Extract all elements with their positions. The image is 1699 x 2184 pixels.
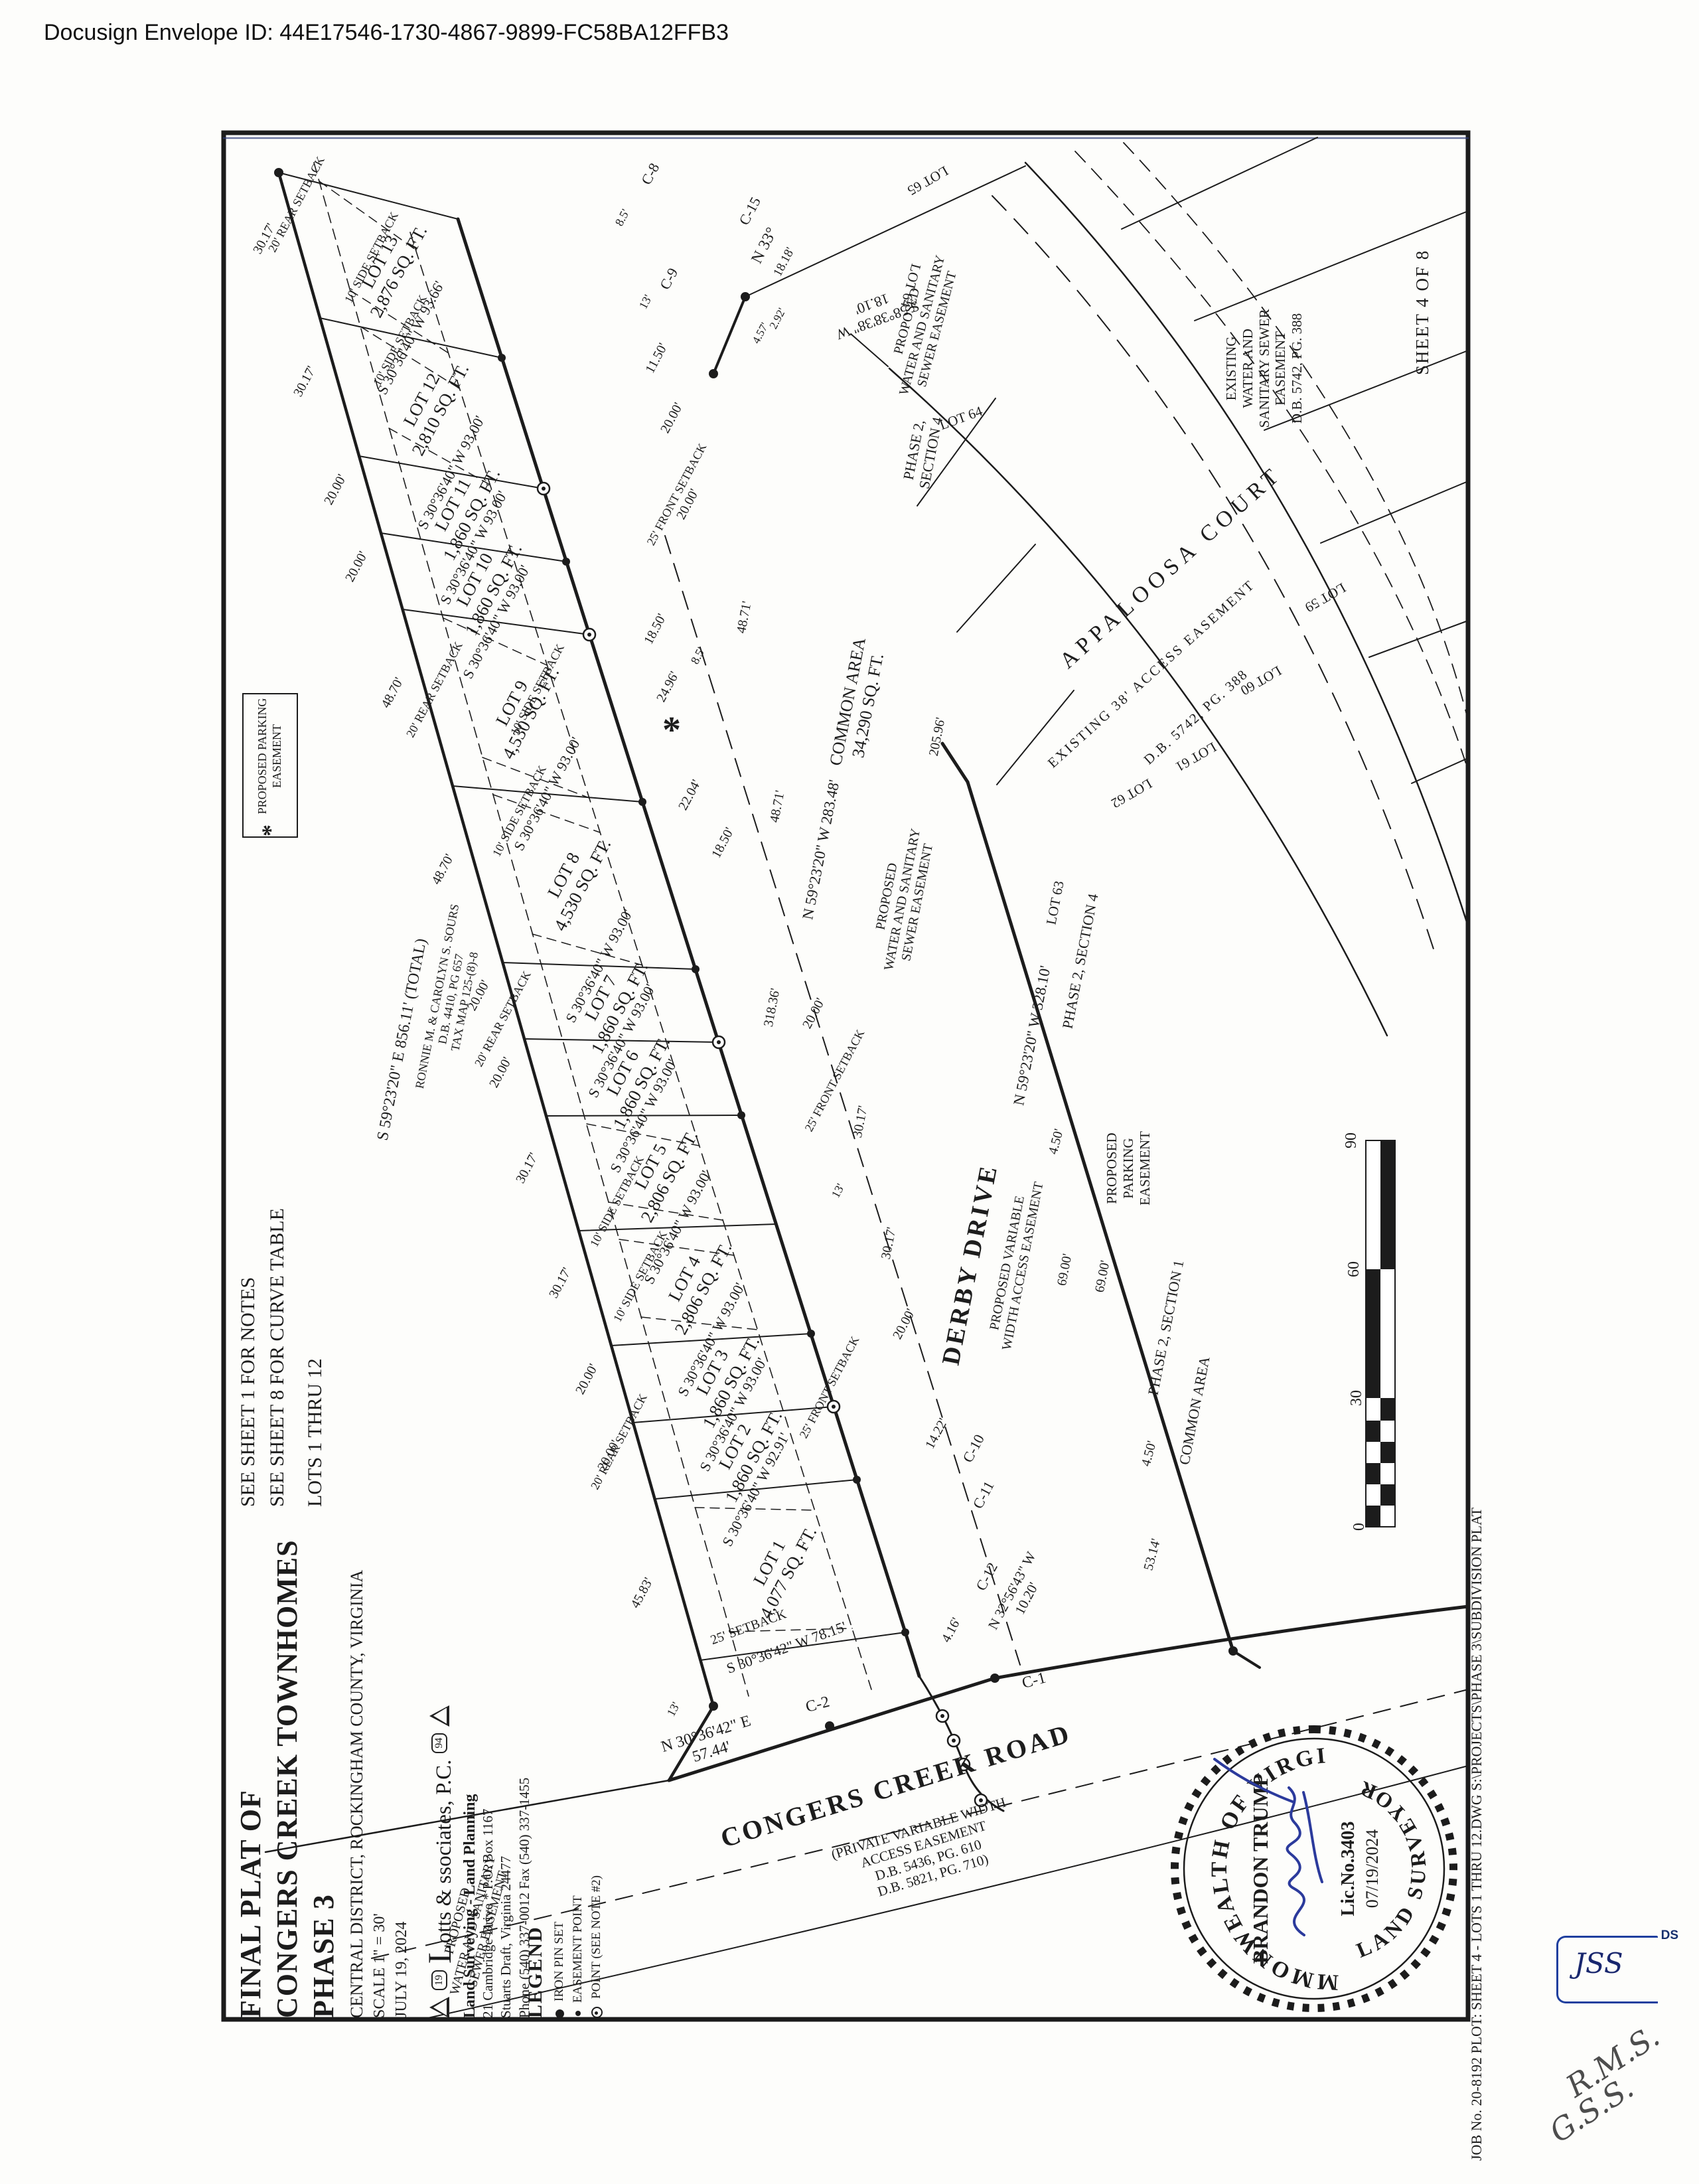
surveyor-seal: COMMONWEALTH OF VIRGINIA LAND SURVEYOR B… [1161, 1716, 1467, 2021]
seal-surveyor-name: BRANDON TRUMP [1248, 1774, 1272, 1964]
bearing-n325643: N 32°56'43" W 10.20' [985, 1549, 1054, 1640]
proposed-ws-easement-road: PROPOSED WATER AND SANITARY SEWER EASEME… [432, 1849, 515, 2001]
dim-13-mid: 13' [829, 1182, 848, 1201]
dim-3017-b: 30.17' [879, 1226, 900, 1261]
bearing-n303642: N 30°36'42" E 57.44' [659, 1711, 759, 1774]
docusign-initials-jss: JSS [1574, 1947, 1623, 1980]
curve-c10: C-10 [959, 1431, 988, 1465]
lot-63-label: LOT 63 [1043, 880, 1067, 926]
dim-1150: 11.50' [642, 341, 671, 376]
curve-c2: C-2 [804, 1693, 832, 1717]
curve-c1: C-1 [1020, 1669, 1048, 1693]
dim-rear-lot12: 30.17' [291, 364, 320, 400]
seal-date: 07/19/2024 [1363, 1830, 1382, 1908]
setback-rear-4: 20' REAR SETBACK [588, 1391, 650, 1492]
scanned-plat-page: { "header": { "docusign": "Docusign Enve… [0, 0, 1699, 2184]
dim-rear-lot8: 48.70' [429, 852, 458, 888]
scale-tick-0: 0 [1350, 1523, 1368, 1531]
proposed-ws-easement-mid: PROPOSED WATER AND SANITARY SEWER EASEME… [866, 824, 940, 975]
dim-1850-a: 18.50' [641, 611, 670, 647]
lot-61-label: LOT 61 [1173, 739, 1219, 775]
dim-85-mid: 8.5' [688, 645, 709, 667]
phase2-section1: PHASE 2, SECTION 1 [1145, 1259, 1188, 1397]
dim-416: 4.16' [939, 1615, 965, 1645]
lot-1-label: LOT 1 4,077 SQ. FT. [737, 1514, 822, 1622]
proposed-ws-easement-top: PROPOSED WATER AND SANITARY SEWER EASEME… [881, 250, 964, 401]
dim-20596: 205.96' [926, 716, 949, 757]
dim-85-top: 8.5' [613, 207, 633, 229]
dim-2000-a: 20.00' [658, 400, 687, 436]
bearing-28348: N 59°23'20" W 283.48' [798, 778, 843, 921]
dim-2204: 22.04' [676, 777, 705, 813]
dim-13-road: 13' [664, 1700, 684, 1719]
scale-tick-30: 30 [1347, 1390, 1366, 1406]
dim-4871-b: 48.71' [767, 789, 788, 824]
seal-license-number: Lic.No.3403 [1338, 1821, 1359, 1916]
asterisk-parking: * [662, 708, 681, 752]
dim-rear-lot11: 20.00' [321, 472, 350, 508]
curve-c12: C-12 [972, 1559, 1001, 1593]
dim-rear-lot3: 20.00' [573, 1362, 602, 1397]
phase2-section4-a: PHASE 2, SECTION 4 [899, 412, 946, 490]
docusign-initials-field[interactable]: DS JSS [1556, 1936, 1658, 2003]
dim-1850-b: 18.50' [709, 825, 738, 861]
dim-13-top: 13' [636, 293, 656, 312]
dim-1818: 18.18' [771, 245, 798, 279]
curve-c9: C-9 [656, 265, 682, 292]
dim-3017-a: 30.17' [850, 1105, 871, 1139]
lot-8-label: LOT 8 4,530 SQ. FT. [531, 826, 616, 935]
street-appaloosa: APPALOOSA COURT [1055, 461, 1288, 674]
curve-c8: C-8 [638, 160, 663, 187]
dim-2000-d: 20.00' [890, 1306, 919, 1342]
bearing-32810: N 59°23'20" W 328.10' [1009, 964, 1054, 1107]
common-area-south: COMMON AREA [1175, 1355, 1213, 1466]
appaloosa-easement-1: EXISTING 38' ACCESS EASEMENT [1045, 576, 1258, 771]
setback-front-3: 25' FRONT SETBACK [796, 1334, 862, 1441]
scale-tick-90: 90 [1342, 1132, 1361, 1148]
lot-65-label: LOT 65 [905, 163, 951, 199]
docusign-ds-tab: DS [1659, 1928, 1680, 1943]
existing-ws-easement: EXISTING WATER AND SANITARY SEWER EASEME… [1223, 309, 1305, 428]
dim-450-a: 4.50' [1046, 1127, 1068, 1156]
dim-rear-lot5: 30.17' [513, 1150, 542, 1186]
lot-62-label: LOT 62 [1108, 775, 1155, 812]
dim-4871-a: 48.71' [734, 600, 755, 635]
dim-side-lot1: 45.83' [628, 1575, 657, 1611]
setback-rear-1: 20' REAR SETBACK [265, 154, 328, 254]
dim-31836: 318.36' [761, 987, 784, 1028]
phase2-section4-b: PHASE 2, SECTION 4 [1059, 892, 1102, 1030]
dim-5314: 53.14' [1141, 1537, 1164, 1572]
dim-450-b: 4.50' [1139, 1439, 1161, 1468]
proposed-parking-right: PROPOSED PARKING EASEMENT [1104, 1131, 1153, 1206]
curve-c11: C-11 [969, 1478, 997, 1512]
dim-rear-lot6: 20.00' [486, 1055, 516, 1091]
dim-rear-lot10: 20.00' [342, 549, 372, 585]
setback-rear-2: 20' REAR SETBACK [404, 639, 466, 740]
lot-59-label: LOT 59 [1302, 580, 1349, 616]
scale-tick-60: 60 [1345, 1261, 1363, 1277]
dim-2496: 24.96' [654, 669, 683, 705]
dim-1422: 14.22' [923, 1416, 952, 1452]
dim-2000-c: 20.00' [800, 996, 829, 1032]
dim-rear-lot9: 48.70' [378, 675, 407, 711]
dim-6900-b: 69.00' [1092, 1259, 1114, 1294]
curve-c15: C-15 [735, 194, 765, 228]
dim-rear-lot4: 30.17' [546, 1265, 575, 1301]
dim-6900-a: 69.00' [1055, 1253, 1076, 1287]
common-area-main: COMMON AREA 34,290 SQ. FT. [826, 636, 891, 771]
